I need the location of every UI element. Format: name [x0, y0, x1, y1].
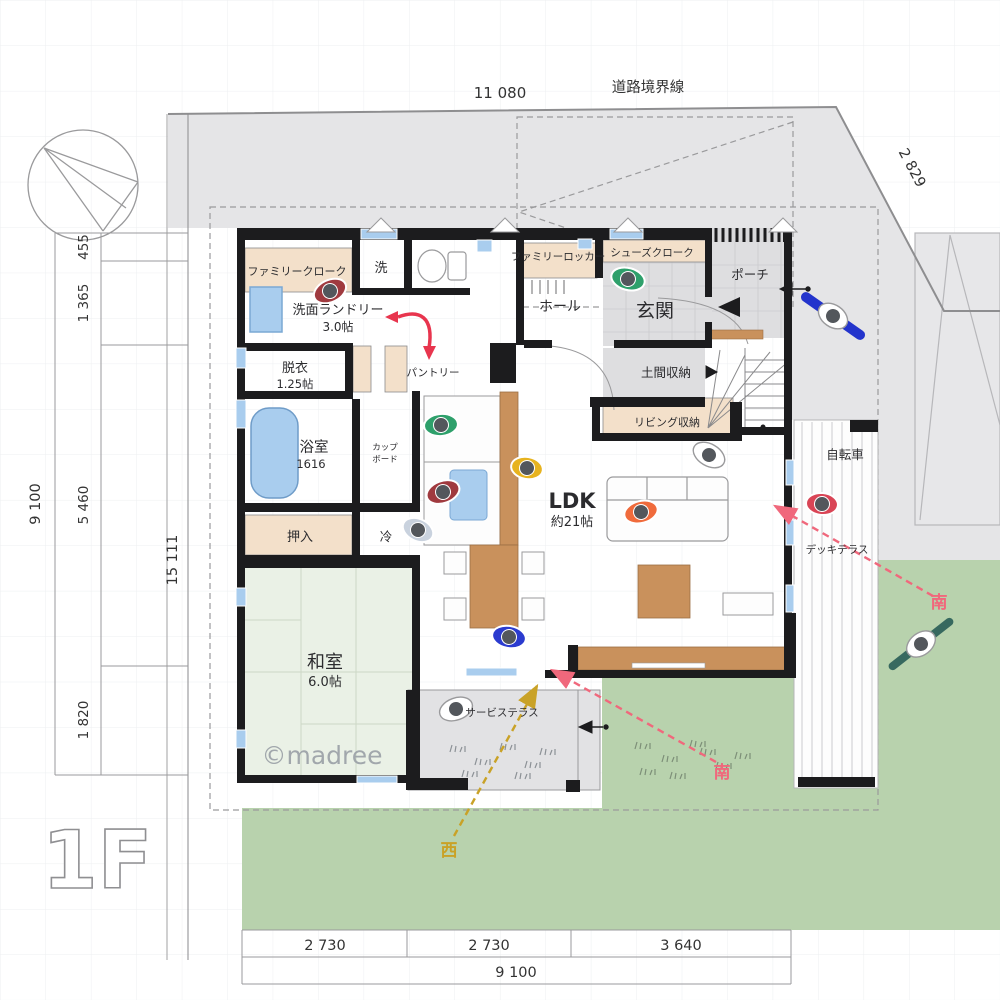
- south-label-garden: 南: [931, 592, 948, 613]
- deck-terrace-area: [794, 420, 878, 788]
- room-label-bathroom: 浴室: [300, 439, 329, 456]
- room-size-washroom: 3.0帖: [322, 319, 353, 334]
- room-label-oshiire: 押入: [287, 530, 313, 545]
- south-label-terrace: 南: [714, 762, 731, 783]
- room-label-entrance: 玄関: [636, 300, 674, 322]
- room-label-ldk: LDK: [548, 489, 596, 513]
- watermark: ©madree: [261, 741, 382, 770]
- room-label-fridge: 冷: [380, 529, 393, 544]
- room-size-ldk: 約21帖: [551, 515, 594, 530]
- pantry-shelf-right: [385, 346, 407, 392]
- room-label-shoes-cloak: シューズクローク: [610, 246, 693, 259]
- dim-left-total: 9 100: [28, 483, 44, 525]
- road-boundary-label: 道路境界線: [612, 78, 685, 96]
- room-label-family-locker: ファミリーロッカー: [511, 251, 606, 263]
- room-label-washroom: 洗面ランドリー: [292, 303, 383, 318]
- dim-site-height: 15 111: [165, 535, 181, 586]
- entrance-step: [706, 330, 763, 339]
- room-label-living-storage: リビング収納: [634, 415, 700, 429]
- side-unit: [723, 593, 773, 615]
- bathtub: [251, 408, 298, 498]
- room-size-dressing: 1.25帖: [276, 377, 313, 391]
- room-label-service-terrace: サービステラス: [465, 707, 538, 719]
- service-terrace-area: [408, 690, 600, 790]
- dim-top-width: 11 080: [474, 84, 527, 102]
- room-label-washitsu: 和室: [307, 652, 343, 673]
- washbasin: [250, 287, 282, 332]
- neighbor-building-outline: [915, 233, 1000, 525]
- floor-plan-canvas: ファミリークローク 洗 洗面ランドリー 3.0帖 脱衣 1.25帖 パントリー …: [0, 0, 1000, 1000]
- room-label-doma-storage: 土間収納: [641, 365, 691, 380]
- low-table: [638, 565, 690, 618]
- dim-left-seg-4: 1 820: [76, 701, 92, 740]
- room-label-porch: ポーチ: [731, 267, 769, 282]
- pantry-shelf-left: [353, 346, 371, 392]
- dim-bottom-seg-2: 2 730: [468, 938, 510, 954]
- room-size-bathroom: 1616: [296, 457, 325, 471]
- room-label-cupboard-1: カップ: [372, 443, 398, 453]
- dining-table: [470, 545, 518, 628]
- dim-left-seg-1: 455: [76, 234, 92, 260]
- dim-bottom-seg-3: 3 640: [660, 938, 702, 954]
- dim-left-seg-3: 5 460: [76, 486, 92, 525]
- porch-tile-floor: [712, 242, 790, 338]
- room-label-hall: ホール: [539, 299, 581, 315]
- toilet: [418, 250, 466, 282]
- room-size-washitsu: 6.0帖: [308, 675, 342, 690]
- floor-label: 1F: [42, 814, 152, 907]
- room-label-deck-terrace: デッキテラス: [806, 543, 869, 556]
- room-label-family-cloak: ファミリークローク: [248, 265, 347, 278]
- room-label-laundry: 洗: [374, 261, 387, 276]
- room-label-bicycle: 自転車: [826, 447, 864, 462]
- west-label: 西: [441, 841, 458, 861]
- floor-plan-page: ファミリークローク 洗 洗面ランドリー 3.0帖 脱衣 1.25帖 パントリー …: [0, 0, 1000, 1000]
- dim-bottom-seg-1: 2 730: [304, 938, 346, 954]
- dim-left-seg-2: 1 365: [76, 284, 92, 323]
- room-label-pantry: パントリー: [406, 367, 459, 379]
- room-label-cupboard-2: ボード: [372, 455, 398, 465]
- tv-board-slot: [632, 663, 705, 668]
- dim-bottom-total: 9 100: [495, 965, 537, 981]
- room-label-dressing: 脱衣: [282, 360, 308, 376]
